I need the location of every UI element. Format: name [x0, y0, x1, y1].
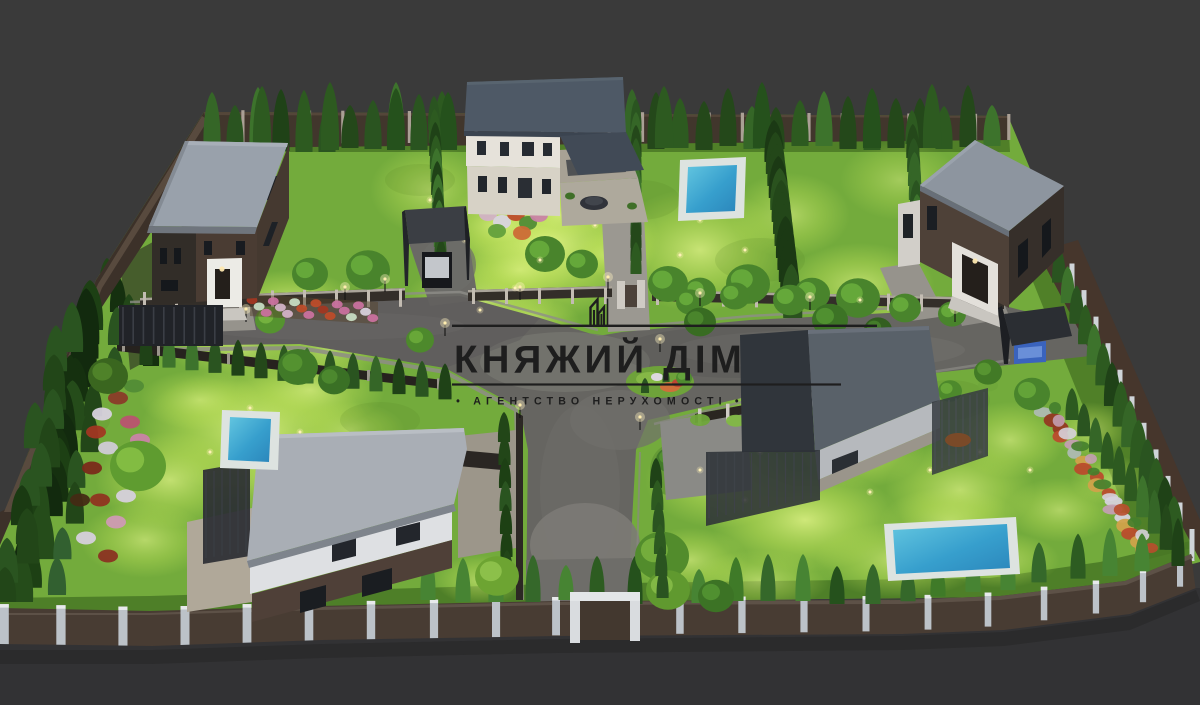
svg-text:КНЯЖИЙ ДІМ: КНЯЖИЙ ДІМ — [454, 337, 746, 382]
svg-text:• АГЕНТСТВО НЕРУХОМОСТІ •: • АГЕНТСТВО НЕРУХОМОСТІ • — [456, 396, 744, 408]
